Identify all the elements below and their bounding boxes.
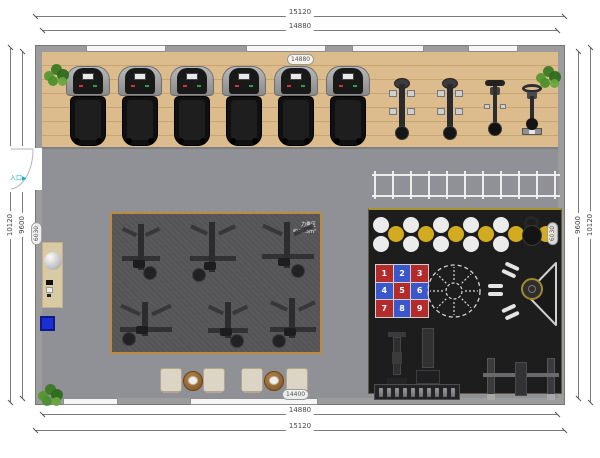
- plant-foliage: [540, 78, 550, 88]
- machine-arm-left: [270, 300, 288, 311]
- machine-seat-pad: [278, 258, 290, 266]
- treadmill-button-right: [353, 85, 357, 87]
- round-table: [183, 371, 203, 391]
- stool: [241, 368, 263, 392]
- floor-label-left-wall: 6030: [31, 222, 42, 245]
- battle-grid-cell: 4: [376, 283, 393, 300]
- rope-wheel: [425, 262, 483, 320]
- strength-machine: [190, 222, 236, 284]
- stool: [160, 368, 182, 392]
- treadmill-deck: [231, 100, 257, 140]
- machine-arm-left: [190, 224, 208, 235]
- elliptical-column: [399, 84, 405, 132]
- dimension-top-inner-label: 14880: [286, 23, 314, 31]
- treadmill-console: [333, 68, 363, 94]
- treadmill-wheel-right: [148, 138, 154, 144]
- medicine-ball-white: [463, 217, 479, 233]
- treadmill-wheel-left: [282, 138, 288, 144]
- upright-bike: [520, 84, 544, 138]
- machine-weight-disc: [291, 264, 305, 278]
- elliptical-column: [447, 84, 453, 132]
- dimension-top-inner: 14880: [42, 30, 558, 31]
- dumbbell-rack: [374, 384, 460, 400]
- treadmill-wheel-left: [230, 138, 236, 144]
- rack-dumbbell: [395, 388, 399, 397]
- strength-machine: [262, 222, 314, 280]
- machine-weight-disc: [230, 334, 244, 348]
- rack-dumbbell: [435, 388, 439, 397]
- treadmill-wheel-left: [178, 138, 184, 144]
- ladder-rail-bottom: [372, 195, 560, 197]
- dimension-bottom-inner-label: 14880: [286, 407, 314, 415]
- elliptical-pedal: [437, 108, 445, 115]
- floor-label-top: 14880: [287, 54, 314, 65]
- battle-grid-cell: 8: [394, 300, 411, 317]
- bike-seat-pad: [529, 130, 535, 134]
- gym-floor-plan: 15120 14880 14880 15120 10120 9600 9600 …: [0, 0, 600, 458]
- medicine-ball-white: [373, 236, 389, 252]
- ladder-rung: [518, 171, 520, 199]
- treadmill-screen: [134, 73, 146, 80]
- medicine-ball-white: [403, 236, 419, 252]
- window: [63, 398, 118, 405]
- machine-arm-left: [120, 304, 141, 317]
- elliptical-seat: [395, 126, 409, 140]
- treadmill-console: [281, 68, 311, 94]
- treadmill-button-right: [93, 85, 97, 87]
- ladder-rung: [500, 171, 502, 199]
- treadmill-button-left: [287, 85, 291, 87]
- plant-foliage: [58, 77, 67, 86]
- ladder-rung: [446, 171, 448, 199]
- stool: [203, 368, 225, 392]
- treadmill: [170, 66, 214, 148]
- treadmill-deck: [283, 100, 309, 140]
- machine-arm-right: [151, 304, 172, 317]
- battle-grid-cell: 1: [376, 265, 393, 282]
- medicine-ball-white: [493, 217, 509, 233]
- treadmill: [274, 66, 318, 148]
- dumbbell: [505, 311, 520, 321]
- treadmill-wheel-right: [304, 138, 310, 144]
- medicine-ball-yellow: [388, 226, 404, 242]
- window: [246, 45, 326, 52]
- dimension-bottom-outer-label: 15120: [286, 423, 314, 431]
- treadmill-wheel-right: [96, 138, 102, 144]
- spin-bike: [484, 80, 506, 138]
- ladder-rung: [536, 171, 538, 199]
- elliptical-pedal: [389, 90, 397, 97]
- battle-grid-cell: 2: [394, 265, 411, 282]
- desk-item-light: [46, 287, 53, 293]
- treadmill-screen: [290, 73, 302, 80]
- treadmill-deck: [335, 100, 361, 140]
- treadmill-wheel-left: [334, 138, 340, 144]
- machine-seat-pad: [284, 328, 296, 336]
- dimension-bottom-outer: 15120: [35, 430, 565, 431]
- medicine-ball-white: [433, 217, 449, 233]
- machine-arm-left: [122, 227, 137, 237]
- treadmill-wheel-right: [252, 138, 258, 144]
- treadmill-wheel-right: [200, 138, 206, 144]
- bike-pedal: [500, 104, 506, 109]
- rack-dumbbell: [411, 388, 415, 397]
- dimension-right-inner: 9600: [578, 52, 579, 398]
- machine-weight-disc: [192, 268, 206, 282]
- strength-machine: [120, 302, 172, 348]
- treadmill-deck: [179, 100, 205, 140]
- machine-seat-pad: [204, 262, 216, 270]
- treadmill-wheel-left: [126, 138, 132, 144]
- rack-dumbbell: [451, 388, 455, 397]
- medicine-ball-white: [463, 236, 479, 252]
- treadmill-console: [229, 68, 259, 94]
- desk-item-small: [47, 294, 51, 297]
- door-swing-area: [8, 146, 35, 192]
- ladder-rail-top: [372, 174, 560, 176]
- machine-weight-disc: [143, 266, 157, 280]
- window: [468, 45, 518, 52]
- plant-foliage: [52, 397, 61, 406]
- ladder-rung: [410, 171, 412, 199]
- elliptical-pedal: [455, 108, 463, 115]
- elliptical-pedal: [407, 108, 415, 115]
- treadmill: [66, 66, 110, 148]
- machine-arm-right: [218, 224, 236, 235]
- ladder-rung: [554, 171, 556, 199]
- treadmill-button-right: [249, 85, 253, 87]
- elliptical: [436, 78, 464, 142]
- round-table: [264, 371, 284, 391]
- elliptical-pedal: [389, 108, 397, 115]
- bike-seat: [488, 122, 502, 136]
- elliptical-seat: [443, 126, 457, 140]
- dimension-right-outer-label: 10120: [587, 211, 595, 239]
- treadmill-button-right: [301, 85, 305, 87]
- ladder-rung: [374, 171, 376, 199]
- kettlebell: [521, 216, 543, 248]
- door-opening: [35, 148, 42, 190]
- window: [86, 45, 166, 52]
- dumbbell: [488, 284, 503, 288]
- treadmill-wheel-right: [356, 138, 362, 144]
- treadmill-screen: [82, 73, 94, 80]
- dumbbell: [501, 269, 516, 279]
- elliptical-pedal: [455, 90, 463, 97]
- bike-pedal: [484, 104, 490, 109]
- potted-plant: [44, 64, 70, 88]
- plant-foliage: [550, 79, 559, 88]
- treadmill-screen: [186, 73, 198, 80]
- machine-seat-pad: [220, 328, 232, 336]
- bike-frame: [493, 86, 497, 122]
- functional-zone: 123456789: [368, 208, 562, 394]
- treadmill-button-left: [183, 85, 187, 87]
- elliptical-pedal: [407, 90, 415, 97]
- dimension-left-outer: 10120: [10, 48, 11, 402]
- battle-rope-grid: 123456789: [375, 264, 429, 318]
- door-swing-arc: [8, 146, 35, 192]
- machine-arm-left: [208, 305, 224, 315]
- machine-arm-left: [262, 224, 283, 237]
- dimension-top-outer: 15120: [35, 16, 565, 17]
- treadmill-button-right: [145, 85, 149, 87]
- strength-machine: [122, 224, 160, 282]
- strength-machine: [208, 302, 248, 350]
- dumbbell-pair: [501, 261, 520, 278]
- plant-foliage: [42, 396, 52, 406]
- machine-seat-pad: [133, 260, 145, 268]
- treadmill-wheel-left: [74, 138, 80, 144]
- rack-dumbbell: [379, 388, 383, 397]
- treadmill: [118, 66, 162, 148]
- medicine-ball-yellow: [478, 226, 494, 242]
- floor-label-bottom: 14400: [282, 389, 309, 400]
- treadmill-button-left: [79, 85, 83, 87]
- ladder-rung: [428, 171, 430, 199]
- rack-dumbbell: [443, 388, 447, 397]
- desk-item-dark: [46, 280, 53, 285]
- treadmill-button-right: [197, 85, 201, 87]
- dimension-right-inner-label: 9600: [575, 213, 583, 237]
- dimension-left-inner: 9600: [22, 52, 23, 398]
- floor-label-right-wall: 6030: [547, 222, 558, 245]
- medicine-ball-white: [433, 236, 449, 252]
- machine-weight-disc: [122, 332, 136, 346]
- treadmill: [326, 66, 370, 148]
- blue-locker-box: [40, 316, 55, 331]
- treadmill-deck: [75, 100, 101, 140]
- plant-foliage: [48, 76, 58, 86]
- weight-plate: [521, 278, 543, 300]
- treadmill-screen: [342, 73, 354, 80]
- treadmill-button-left: [131, 85, 135, 87]
- rack-dumbbell: [427, 388, 431, 397]
- dumbbell-pair: [488, 284, 503, 296]
- machine-arm-right: [145, 227, 160, 237]
- rack-dumbbell: [387, 388, 391, 397]
- machine-arm-right: [293, 224, 314, 237]
- dumbbell-pair: [501, 303, 520, 320]
- treadmill-console: [125, 68, 155, 94]
- dimension-left-inner-label: 9600: [19, 213, 27, 237]
- rack-dumbbell: [403, 388, 407, 397]
- entrance-label: 入口▶: [10, 176, 27, 182]
- treadmill-console: [73, 68, 103, 94]
- strength-zone: 力量区 约47.5m²: [110, 212, 322, 354]
- strength-machine: [270, 298, 316, 350]
- machine-beam: [190, 256, 236, 261]
- treadmill-button-left: [339, 85, 343, 87]
- machine-seat-pad: [136, 326, 148, 334]
- sphere-chair: [44, 252, 62, 270]
- adjustable-bench: [386, 332, 408, 386]
- treadmill-console: [177, 68, 207, 94]
- dimension-bottom-inner: 14880: [42, 414, 558, 415]
- squat-rack: [487, 354, 555, 400]
- entrance-text: 入口: [10, 175, 22, 182]
- bike-seat: [526, 118, 538, 130]
- ladder-rung: [392, 171, 394, 199]
- entrance-arrow-icon: ▶: [22, 175, 27, 182]
- elliptical-pedal: [437, 90, 445, 97]
- medicine-ball-white: [493, 236, 509, 252]
- potted-plant: [536, 66, 562, 90]
- battle-grid-cell: 5: [394, 283, 411, 300]
- ladder-rung: [482, 171, 484, 199]
- machine-arm-right: [298, 300, 316, 311]
- dimension-left-outer-label: 10120: [7, 211, 15, 239]
- battle-grid-cell: 7: [376, 300, 393, 317]
- treadmill-screen: [238, 73, 250, 80]
- machine-arm-right: [232, 305, 248, 315]
- dumbbell: [488, 292, 503, 296]
- medicine-ball-yellow: [448, 226, 464, 242]
- elliptical: [388, 78, 416, 142]
- medicine-ball-white: [403, 217, 419, 233]
- dimension-top-outer-label: 15120: [286, 9, 314, 17]
- dimension-right-outer: 10120: [590, 48, 591, 402]
- treadmill-button-left: [235, 85, 239, 87]
- medicine-ball-white: [373, 217, 389, 233]
- medicine-ball-yellow: [418, 226, 434, 242]
- rack-dumbbell: [419, 388, 423, 397]
- machine-weight-disc: [272, 334, 286, 348]
- window: [352, 45, 424, 52]
- ladder-rung: [464, 171, 466, 199]
- treadmill-deck: [127, 100, 153, 140]
- vertical-machine: [415, 328, 441, 388]
- potted-plant: [38, 384, 64, 408]
- treadmill: [222, 66, 266, 148]
